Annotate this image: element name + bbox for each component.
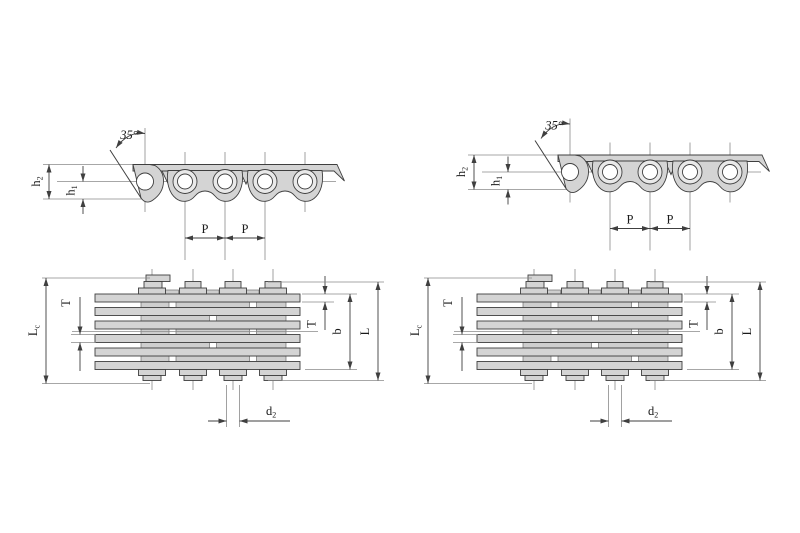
guide-hole bbox=[137, 173, 154, 190]
angle-label: 35° bbox=[119, 128, 138, 142]
silent-chain-drawing: 35° h2 h1 P P bbox=[0, 0, 800, 533]
pitch-label: P bbox=[242, 222, 249, 236]
pitch-label: P bbox=[202, 222, 209, 236]
background bbox=[0, 0, 800, 533]
technical-drawing-page: 35° h2 h1 P P bbox=[0, 0, 800, 533]
l-label: L bbox=[358, 328, 372, 336]
b-label: b bbox=[330, 328, 344, 334]
t-left-label: T bbox=[59, 299, 73, 307]
t-right-label: T bbox=[305, 320, 319, 328]
